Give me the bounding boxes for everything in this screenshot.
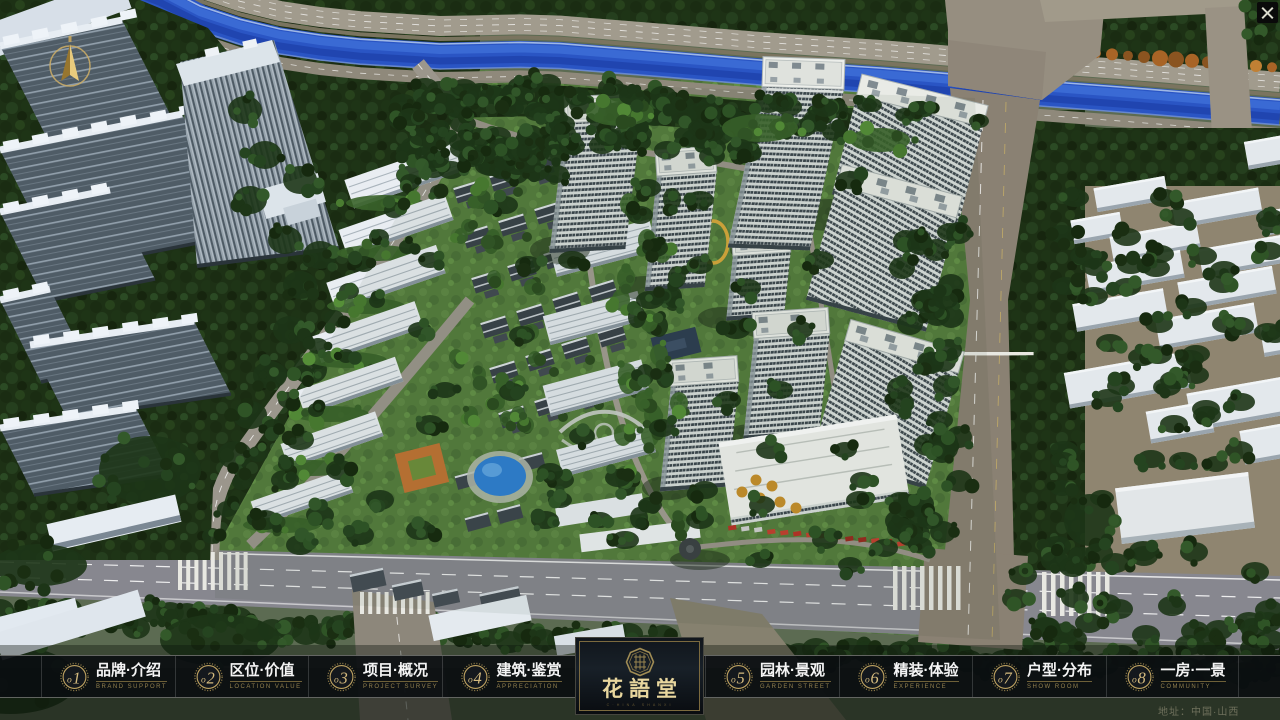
svg-text:1: 1	[73, 668, 81, 687]
svg-text:o: o	[1132, 675, 1137, 685]
svg-text:o: o	[201, 675, 206, 685]
svg-text:6: 6	[870, 668, 879, 687]
svg-text:o: o	[67, 675, 72, 685]
svg-text:o: o	[334, 675, 339, 685]
svg-text:o: o	[731, 675, 736, 685]
svg-text:8: 8	[1137, 668, 1146, 687]
svg-text:7: 7	[1004, 668, 1013, 687]
svg-text:4: 4	[473, 668, 481, 687]
svg-text:o: o	[865, 675, 870, 685]
svg-text:o: o	[468, 675, 473, 685]
svg-text:5: 5	[737, 668, 745, 687]
svg-text:o: o	[998, 675, 1003, 685]
svg-text:2: 2	[206, 668, 214, 687]
svg-text:3: 3	[339, 668, 348, 687]
